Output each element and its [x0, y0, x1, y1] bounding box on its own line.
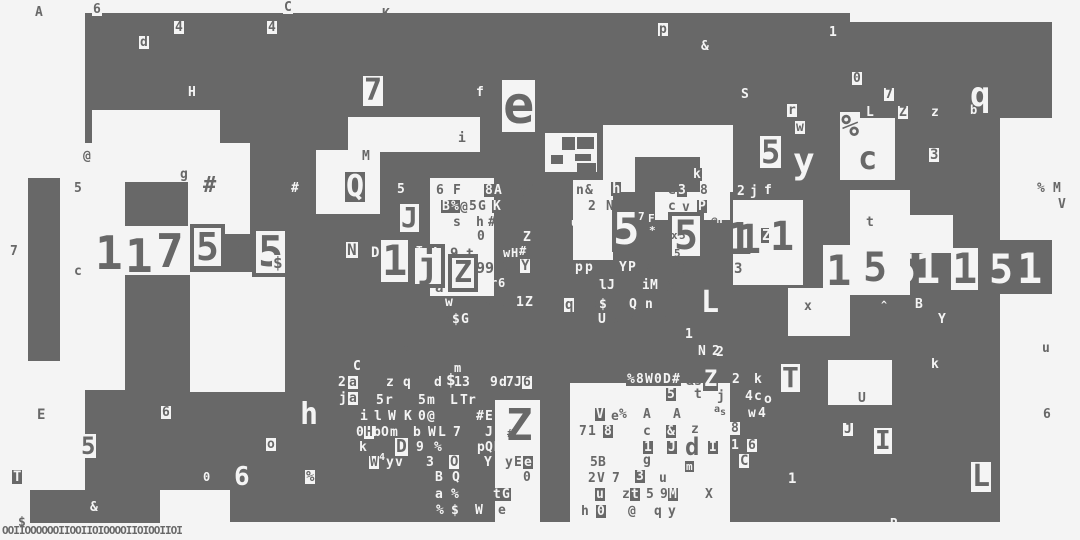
char-glyph: v [395, 456, 403, 469]
char-glyph: J [843, 423, 853, 436]
char-glyph: u [1041, 342, 1051, 355]
char-glyph: 0 [852, 72, 862, 85]
char-glyph: J [514, 376, 522, 389]
char-glyph: J [667, 441, 677, 454]
char-glyph: P [627, 261, 637, 274]
char-glyph: t [630, 488, 640, 501]
char-glyph: h [581, 505, 589, 518]
char-glyph: M [649, 279, 659, 292]
char-glyph: 0 [477, 230, 485, 243]
char-glyph: 1 [381, 240, 408, 282]
char-glyph: , [764, 264, 772, 277]
char-glyph: & [686, 375, 694, 388]
char-glyph: e [498, 504, 506, 517]
char-glyph: 1 [684, 328, 694, 341]
char-glyph: 1 [915, 248, 940, 290]
char-glyph: M [668, 488, 678, 501]
char-glyph: V [1058, 198, 1066, 211]
char-glyph: K [492, 200, 502, 213]
char-glyph: % [450, 200, 460, 213]
char-glyph: y [386, 456, 394, 469]
char-glyph: 5 [376, 394, 384, 407]
char-glyph: E [514, 456, 522, 469]
char-glyph: W [388, 410, 396, 423]
char-glyph: h [476, 216, 484, 229]
char-glyph: Z [448, 254, 478, 292]
char-glyph: Q [345, 172, 365, 202]
char-glyph: e [502, 80, 535, 132]
char-glyph: B [915, 298, 923, 311]
char-glyph: c [643, 425, 651, 438]
char-glyph: 5 [612, 208, 641, 252]
char-glyph: @ [711, 216, 718, 227]
char-glyph: ^ [881, 301, 887, 311]
char-glyph: c [700, 217, 707, 228]
char-glyph: A [493, 184, 503, 197]
char-glyph: C [676, 261, 685, 276]
char-glyph: 7 [638, 211, 645, 222]
char-glyph: 6 [747, 439, 757, 452]
char-glyph: b [588, 313, 596, 326]
char-glyph: d [434, 376, 442, 389]
pattern-tile-cell [551, 155, 563, 164]
char-glyph: I [874, 428, 892, 454]
char-glyph: 5 [469, 200, 477, 213]
char-glyph: 2 [588, 230, 596, 243]
char-glyph: 1 [1017, 248, 1042, 290]
char-glyph: # [671, 373, 681, 386]
char-glyph: z [622, 488, 630, 501]
char-glyph: & [612, 315, 620, 328]
char-glyph: 0 [596, 505, 606, 518]
char-glyph: y [793, 144, 815, 180]
char-glyph: r [385, 394, 393, 407]
char-glyph: v [1011, 298, 1018, 309]
char-glyph: 1 [951, 248, 978, 290]
char-glyph: $ [451, 504, 459, 517]
char-glyph: # [488, 216, 496, 229]
char-glyph: T [12, 470, 22, 484]
char-glyph: Q [451, 471, 461, 484]
char-glyph: 8 [603, 425, 613, 438]
char-glyph: 4 [654, 298, 662, 311]
pattern-tile-cell [577, 137, 594, 149]
pattern-tile-cell [575, 154, 591, 161]
char-glyph: 8 [730, 422, 740, 435]
char-glyph: 3 [929, 148, 939, 162]
light-block [788, 288, 850, 336]
char-glyph: 2 [588, 200, 596, 213]
char-glyph: 5 [396, 183, 406, 196]
char-glyph: % [305, 470, 315, 484]
char-glyph: f [764, 184, 772, 197]
char-glyph: i [457, 132, 467, 145]
char-glyph: k [482, 279, 489, 291]
char-glyph: 8 [700, 184, 708, 197]
char-glyph: 4 [745, 390, 753, 403]
char-glyph: 5 [418, 394, 426, 407]
char-glyph: d [516, 281, 524, 294]
char-glyph: w [485, 298, 492, 309]
char-glyph: G [501, 488, 511, 501]
char-glyph: 3 [509, 200, 517, 213]
char-glyph: f [476, 86, 484, 99]
char-glyph: 6 [498, 277, 505, 289]
char-glyph: s [748, 200, 756, 213]
char-glyph: 3 [462, 376, 470, 389]
char-glyph: s [720, 408, 726, 418]
char-glyph: k [692, 168, 702, 181]
char-glyph: 4 [758, 407, 766, 420]
light-block [92, 110, 220, 143]
char-glyph: 4 [497, 313, 505, 326]
char-glyph: W [475, 504, 483, 517]
char-glyph: j [750, 185, 758, 198]
char-glyph: W [428, 426, 436, 439]
char-glyph: O [381, 426, 389, 439]
char-glyph: r [468, 394, 476, 407]
char-glyph: U [858, 392, 866, 405]
char-glyph: 5 [252, 227, 289, 277]
char-glyph: H [188, 86, 196, 99]
gray-block [1000, 22, 1052, 118]
char-glyph: C [739, 454, 749, 468]
char-glyph: v [547, 214, 555, 227]
char-glyph: m [453, 362, 462, 374]
char-glyph: & [90, 501, 98, 514]
char-glyph: D [371, 246, 379, 260]
char-glyph: M [362, 150, 370, 163]
char-glyph: 5 [679, 230, 686, 241]
char-glyph: Y [938, 313, 946, 326]
char-glyph: E [36, 408, 46, 422]
char-glyph: C [283, 1, 293, 14]
char-glyph: 4 [174, 21, 184, 34]
char-glyph: y [668, 505, 676, 518]
pattern-tile-cell [577, 163, 596, 172]
char-glyph: 8 [589, 298, 597, 311]
char-glyph: g [180, 168, 188, 181]
char-glyph: 7 [612, 472, 620, 485]
char-glyph: T [749, 262, 757, 276]
char-glyph: a [348, 376, 358, 389]
char-glyph: @ [628, 505, 636, 518]
char-glyph: 4 [379, 453, 385, 463]
char-glyph: 2 [403, 344, 411, 358]
char-glyph: m [685, 461, 694, 472]
char-glyph: 9 [476, 261, 485, 276]
char-glyph: H [511, 247, 518, 259]
char-glyph: X [518, 200, 526, 213]
char-glyph: b [413, 426, 421, 439]
char-glyph: & [645, 261, 653, 274]
char-glyph: u [571, 217, 578, 228]
char-glyph: 2 [736, 185, 746, 198]
char-glyph: X [705, 488, 713, 501]
char-glyph: 5 [862, 248, 888, 288]
glyph-strip: OOIIOOOOOOIIOOIIOIOOOOIIOIOOIIOI [2, 524, 182, 537]
char-glyph: a [435, 281, 443, 295]
char-glyph: u [595, 488, 605, 501]
char-glyph: 5 [674, 248, 681, 259]
char-glyph: f [475, 296, 483, 309]
char-glyph: g [517, 184, 525, 197]
char-glyph: C [352, 360, 362, 373]
char-glyph: 5 [80, 434, 96, 458]
char-glyph: w [748, 407, 756, 420]
char-glyph: 7 [156, 228, 184, 274]
char-glyph: u [637, 263, 645, 276]
char-glyph: S [741, 88, 749, 101]
char-glyph: z [386, 376, 394, 389]
char-glyph: # [203, 175, 216, 197]
char-glyph: L [450, 394, 458, 407]
char-glyph: 2 [716, 346, 724, 359]
char-glyph: % [840, 112, 860, 142]
char-glyph: T [781, 364, 800, 392]
char-glyph: a [348, 392, 358, 405]
char-glyph: b [373, 426, 381, 439]
char-glyph: U [597, 313, 607, 326]
char-glyph: e [523, 456, 533, 469]
char-glyph: 3 [733, 262, 743, 276]
char-glyph: 5 [892, 250, 916, 290]
char-glyph: e [611, 410, 619, 423]
char-glyph: I [708, 441, 718, 454]
gray-block [28, 178, 60, 361]
char-glyph: Q [485, 441, 493, 454]
char-glyph: 2 [731, 373, 741, 386]
char-glyph: 5 [646, 488, 654, 501]
char-glyph: 6 [1043, 408, 1051, 421]
char-glyph: K [382, 8, 390, 21]
char-glyph: % [435, 504, 445, 517]
char-glyph: d [684, 435, 700, 459]
char-glyph: 5 [666, 388, 676, 401]
char-glyph: 1 [788, 472, 796, 486]
char-glyph: $ [272, 255, 284, 271]
char-glyph: 5 [73, 182, 83, 195]
char-glyph: @ [460, 201, 468, 214]
char-glyph: 1 [588, 425, 596, 438]
char-glyph: Y [520, 259, 530, 273]
char-glyph: x [671, 230, 678, 241]
char-glyph: B [435, 471, 443, 484]
char-glyph: m [426, 394, 436, 407]
char-glyph: 2 [502, 261, 511, 276]
char-glyph: w [503, 247, 510, 259]
char-glyph: i [360, 410, 368, 423]
char-glyph: k [753, 373, 763, 386]
char-glyph: t [866, 216, 874, 229]
char-glyph: 6 [92, 3, 102, 16]
char-glyph: @ [83, 150, 91, 163]
char-glyph: E [716, 184, 724, 197]
char-glyph: R [580, 216, 588, 229]
char-glyph: r [490, 277, 497, 289]
char-glyph: c [754, 390, 762, 403]
char-glyph: 5 [989, 250, 1013, 290]
char-glyph: 2 [338, 376, 346, 389]
char-glyph: A [432, 246, 439, 257]
char-glyph: T [416, 245, 423, 256]
char-glyph: z [500, 298, 507, 310]
char-glyph: d [139, 36, 149, 49]
char-glyph: q [564, 298, 574, 312]
char-glyph: V [597, 472, 605, 485]
char-glyph: K [404, 410, 412, 423]
char-glyph: Y [483, 456, 493, 469]
char-glyph: 3 [425, 456, 435, 469]
char-glyph: # [519, 245, 526, 257]
char-glyph: z [931, 106, 939, 119]
char-glyph: 5 [760, 136, 781, 168]
char-glyph: 2 [588, 472, 596, 485]
char-glyph: & [666, 425, 676, 438]
char-glyph: N [698, 345, 706, 358]
char-glyph: % [434, 441, 442, 454]
char-glyph: 7 [453, 426, 461, 439]
char-glyph: p [585, 261, 593, 274]
char-glyph: 6 [522, 376, 532, 389]
char-glyph: 3 [635, 470, 645, 483]
char-glyph: 7 [363, 76, 383, 106]
light-block [60, 182, 125, 390]
char-glyph: 6 [234, 464, 250, 490]
char-glyph: p [575, 261, 583, 274]
char-glyph: N [494, 441, 502, 454]
char-glyph: Q [628, 298, 638, 311]
light-block [190, 272, 285, 392]
gray-block [230, 490, 850, 522]
char-glyph: q [402, 376, 412, 389]
char-glyph: $ [598, 298, 608, 311]
char-glyph: Z [524, 296, 534, 309]
char-glyph: p [658, 23, 668, 36]
char-glyph: A [643, 408, 651, 421]
char-glyph: L [701, 288, 719, 318]
char-glyph: F [648, 213, 655, 224]
char-glyph: 5 [228, 238, 241, 260]
char-glyph: h [546, 184, 554, 197]
char-glyph: W [369, 456, 379, 469]
char-glyph: y [505, 456, 513, 469]
char-glyph: w [795, 121, 805, 134]
char-glyph: Z [522, 231, 532, 244]
char-glyph: u [762, 199, 770, 212]
char-glyph: E [484, 410, 494, 423]
char-glyph: L [971, 462, 991, 492]
char-glyph: 1 [125, 233, 153, 279]
char-glyph: 2 [626, 313, 634, 326]
char-glyph: I [506, 313, 514, 326]
char-glyph: s [453, 216, 461, 229]
char-glyph: 9 [416, 441, 424, 454]
char-glyph: e [668, 184, 676, 197]
char-glyph: r [787, 104, 797, 117]
char-glyph: 1 [435, 313, 443, 326]
char-glyph: l [374, 410, 382, 423]
char-glyph: V [595, 408, 605, 421]
char-glyph: 6 [436, 184, 444, 197]
char-glyph: 3 [677, 184, 687, 197]
char-glyph: 1 [493, 230, 501, 243]
char-glyph: G [460, 313, 470, 326]
char-glyph: h [611, 182, 621, 196]
char-glyph: n [644, 298, 654, 311]
char-glyph: F [453, 184, 461, 197]
char-glyph: 7 [10, 245, 18, 258]
char-glyph: # [507, 428, 514, 439]
char-glyph: # [291, 182, 299, 195]
char-glyph: G [478, 200, 486, 213]
char-glyph: 7 [884, 88, 894, 101]
char-glyph: 0 [356, 426, 364, 439]
char-glyph: D [395, 438, 408, 456]
char-glyph: j [339, 392, 347, 405]
char-glyph: n [576, 184, 584, 197]
char-glyph: o [764, 393, 772, 406]
char-glyph: q [654, 505, 662, 518]
char-glyph: 1 [829, 26, 837, 39]
char-glyph: $ [666, 279, 675, 294]
char-glyph: c [73, 265, 83, 278]
char-glyph: 4 [524, 216, 532, 229]
glitch-canvas: A6Cd44Kp&1H7feSr07LZzbqw%5yc3%MViMQ##5J@… [0, 0, 1080, 540]
char-glyph: L [866, 106, 874, 119]
char-glyph: M [1053, 182, 1061, 195]
char-glyph: % [1037, 182, 1045, 195]
char-glyph: j [716, 390, 726, 403]
char-glyph: 9 [660, 488, 668, 501]
char-glyph: % [619, 408, 627, 421]
char-glyph: 1 [95, 230, 123, 276]
char-glyph: 7 [579, 425, 587, 438]
char-glyph: & [701, 40, 709, 53]
char-glyph: Z [443, 313, 451, 326]
char-glyph: u [659, 472, 667, 485]
char-glyph: k [359, 441, 367, 454]
char-glyph: Z [505, 404, 534, 448]
char-glyph: w [445, 296, 453, 309]
char-glyph: h [300, 400, 318, 430]
pattern-tile-cell [562, 137, 575, 150]
char-glyph: L [438, 426, 446, 439]
char-glyph: Z [703, 369, 718, 391]
char-glyph: g [643, 454, 651, 467]
char-glyph: 1 [454, 376, 462, 389]
char-glyph: 6 [526, 184, 534, 197]
char-glyph: 0 [523, 471, 531, 484]
char-glyph: & [585, 184, 593, 197]
char-glyph: 9 [485, 261, 494, 276]
char-glyph: J [400, 204, 419, 232]
char-glyph: % [451, 488, 459, 501]
char-glyph: O [449, 455, 459, 469]
char-glyph: 8 [659, 313, 667, 326]
char-glyph: 0 [203, 471, 210, 483]
char-glyph: 1 [769, 217, 795, 257]
char-glyph: A [35, 6, 43, 19]
char-glyph: t [694, 388, 702, 401]
char-glyph: 6 [161, 406, 171, 419]
char-glyph: 4 [267, 21, 277, 34]
char-glyph: N [346, 242, 358, 258]
char-glyph: 5 [590, 456, 598, 469]
char-glyph: 1 [737, 220, 761, 260]
char-glyph: A [673, 408, 681, 421]
char-glyph: x [804, 300, 812, 313]
